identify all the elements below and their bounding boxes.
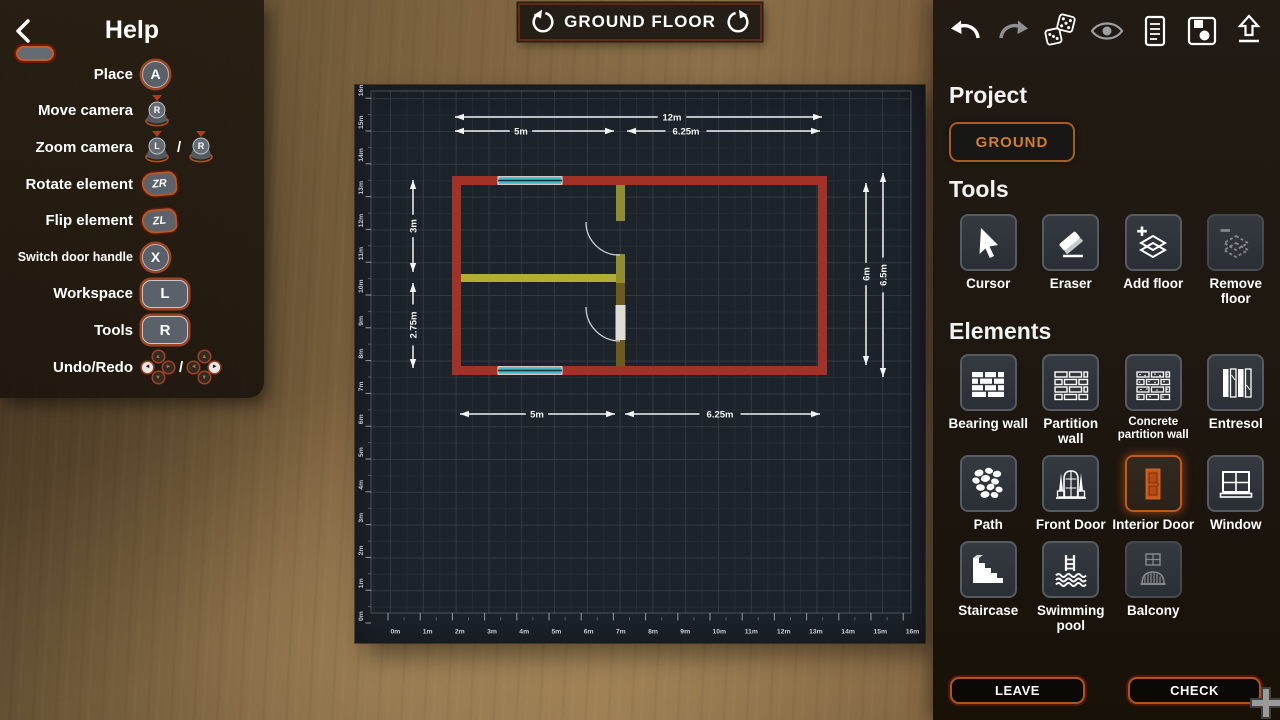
svg-text:15m: 15m	[358, 115, 365, 129]
redo-icon[interactable]	[994, 12, 1032, 50]
window-top	[498, 177, 562, 185]
elements-heading: Elements	[949, 318, 1051, 345]
undo-icon[interactable]	[947, 12, 985, 50]
help-row-workspace: Workspace L	[0, 276, 264, 313]
help-row-zoom-camera: Zoom camera L / R	[0, 129, 264, 166]
svg-text:1m: 1m	[358, 578, 365, 588]
add-floor-icon	[1125, 214, 1182, 271]
svg-text:13m: 13m	[809, 629, 823, 636]
notes-document-icon[interactable]	[1136, 12, 1174, 50]
svg-text:6.25m: 6.25m	[673, 126, 700, 137]
partition-wall-horizontal	[461, 274, 616, 282]
element-partition-wall[interactable]: Partition wall	[1030, 354, 1113, 446]
rotate-ccw-icon[interactable]	[529, 9, 556, 36]
svg-text:6m: 6m	[358, 414, 365, 424]
floor-title: GROUND FLOOR	[564, 12, 716, 32]
svg-text:10m: 10m	[713, 629, 727, 636]
zl-button-icon: ZL	[141, 207, 178, 234]
help-row-tools: Tools R	[0, 312, 264, 349]
partition-wall-vertical-lower1	[616, 283, 625, 305]
svg-text:12m: 12m	[662, 112, 681, 123]
interior-door-leaf	[616, 305, 626, 340]
elements-grid: Bearing wall Partition wall Concrete par…	[947, 354, 1277, 643]
staircase-icon	[960, 541, 1017, 598]
leave-button[interactable]: LEAVE	[950, 677, 1085, 704]
right-stick-icon: R	[142, 94, 172, 128]
svg-text:3m: 3m	[487, 629, 497, 636]
element-balcony[interactable]: Balcony	[1112, 541, 1195, 633]
randomize-dice-icon[interactable]	[1041, 12, 1079, 50]
element-staircase[interactable]: Staircase	[947, 541, 1030, 633]
element-bearing-wall[interactable]: Bearing wall	[947, 354, 1030, 446]
svg-text:5m: 5m	[552, 629, 562, 636]
element-concrete-partition-wall[interactable]: Concrete partition wall	[1112, 354, 1195, 446]
svg-text:16m: 16m	[906, 629, 920, 636]
svg-text:4m: 4m	[358, 480, 365, 490]
help-panel: Help Place A Move camera R Zoom camera	[0, 0, 264, 398]
svg-text:13m: 13m	[358, 181, 365, 195]
svg-text:8m: 8m	[358, 349, 365, 359]
interior-door-icon	[1125, 455, 1182, 512]
partition-wall-icon	[1042, 354, 1099, 411]
partition-wall-vertical-upper	[616, 185, 625, 221]
path-icon	[960, 455, 1017, 512]
svg-text:2m: 2m	[358, 546, 365, 556]
svg-text:7m: 7m	[358, 382, 365, 392]
help-row-switch-door-handle: Switch door handle X	[0, 239, 264, 276]
svg-text:R: R	[198, 142, 205, 152]
svg-text:12m: 12m	[358, 214, 365, 228]
save-floppy-icon[interactable]	[1183, 12, 1221, 50]
svg-text:2m: 2m	[455, 629, 465, 636]
svg-text:5m: 5m	[530, 409, 544, 420]
toolbar-icon-row	[947, 12, 1268, 50]
zr-button-icon: ZR	[141, 171, 178, 198]
blueprint-canvas[interactable]: 0m1m2m3m4m5m6m7m8m9m10m11m12m13m14m15m16…	[355, 85, 925, 643]
help-row-rotate-element: Rotate element ZR	[0, 166, 264, 203]
tool-eraser[interactable]: Eraser	[1030, 214, 1113, 306]
tools-grid: Cursor Eraser Add floor Remove floor	[947, 214, 1277, 315]
svg-text:16m: 16m	[358, 85, 365, 96]
crosshair-cursor-icon	[1249, 686, 1280, 720]
svg-text:6m: 6m	[861, 267, 872, 281]
l-button-icon: L	[142, 280, 188, 308]
floor-selector-header: GROUND FLOOR	[518, 3, 762, 41]
floor-plan-svg: 0m1m2m3m4m5m6m7m8m9m10m11m12m13m14m15m16…	[355, 85, 925, 643]
svg-text:6.5m: 6.5m	[878, 264, 889, 286]
svg-text:15m: 15m	[874, 629, 888, 636]
help-row-flip-element: Flip element ZL	[0, 202, 264, 239]
svg-text:6.25m: 6.25m	[707, 409, 734, 420]
element-entresol[interactable]: Entresol	[1195, 354, 1278, 446]
svg-text:0m: 0m	[391, 629, 401, 636]
swimming-pool-icon	[1042, 541, 1099, 598]
svg-text:14m: 14m	[841, 629, 855, 636]
svg-text:10m: 10m	[358, 279, 365, 293]
export-upload-icon[interactable]	[1230, 12, 1268, 50]
window-icon	[1207, 455, 1264, 512]
tools-heading: Tools	[949, 176, 1009, 203]
help-row-move-camera: Move camera R	[0, 93, 264, 130]
eraser-icon	[1042, 214, 1099, 271]
partition-wall-vertical-lower2	[616, 340, 625, 367]
svg-text:R: R	[154, 105, 161, 115]
visibility-eye-icon[interactable]	[1088, 12, 1126, 50]
element-window[interactable]: Window	[1195, 455, 1278, 532]
entresol-icon	[1207, 354, 1264, 411]
tool-cursor[interactable]: Cursor	[947, 214, 1030, 306]
x-button-icon: X	[142, 244, 169, 271]
element-interior-door[interactable]: Interior Door	[1112, 455, 1195, 532]
a-button-icon: A	[142, 61, 169, 88]
svg-text:11m: 11m	[745, 629, 758, 636]
element-front-door[interactable]: Front Door	[1030, 455, 1113, 532]
element-path[interactable]: Path	[947, 455, 1030, 532]
dpad-right-icon: ▲◄►▼	[188, 351, 220, 383]
remove-floor-icon	[1207, 214, 1264, 271]
cursor-icon	[960, 214, 1017, 271]
r-button-icon: R	[142, 316, 188, 344]
element-swimming-pool[interactable]: Swimming pool	[1030, 541, 1113, 633]
help-title: Help	[0, 16, 264, 45]
left-stick-icon: L	[142, 130, 172, 164]
svg-text:9m: 9m	[680, 629, 690, 636]
bearing-wall-icon	[960, 354, 1017, 411]
dpad-left-icon: ▲◄►▼	[142, 351, 174, 383]
floor-planner-app: { "help": { "title": "Help", "rows": [ {…	[0, 0, 1280, 720]
rotate-cw-icon[interactable]	[724, 9, 751, 36]
svg-text:4m: 4m	[519, 629, 529, 636]
svg-text:0m: 0m	[358, 611, 365, 621]
svg-text:9m: 9m	[358, 316, 365, 326]
svg-text:6m: 6m	[584, 629, 594, 636]
svg-text:11m: 11m	[358, 247, 365, 260]
front-door-icon	[1042, 455, 1099, 512]
tool-add-floor[interactable]: Add floor	[1112, 214, 1195, 306]
svg-text:5m: 5m	[358, 447, 365, 457]
partition-wall-vertical-mid	[616, 254, 625, 283]
svg-text:1m: 1m	[423, 629, 433, 636]
window-bottom	[498, 367, 562, 375]
check-button[interactable]: CHECK	[1128, 677, 1261, 704]
project-heading: Project	[949, 82, 1027, 109]
svg-text:12m: 12m	[777, 629, 791, 636]
tool-remove-floor[interactable]: Remove floor	[1195, 214, 1278, 306]
svg-text:7m: 7m	[616, 629, 626, 636]
project-ground-button[interactable]: GROUND	[949, 122, 1075, 162]
right-stick-icon: R	[186, 130, 216, 164]
svg-text:5m: 5m	[514, 126, 528, 137]
concrete-partition-wall-icon	[1125, 354, 1182, 411]
help-row-place: Place A	[0, 56, 264, 93]
svg-text:L: L	[154, 142, 160, 152]
svg-text:8m: 8m	[648, 629, 658, 636]
svg-text:3m: 3m	[358, 513, 365, 523]
help-row-undo-redo: Undo/Redo ▲◄►▼ / ▲◄►▼	[0, 349, 264, 386]
svg-text:3m: 3m	[408, 219, 419, 233]
balcony-icon	[1125, 541, 1182, 598]
right-panel: Project GROUND Tools Cursor Eraser Add f…	[933, 0, 1280, 720]
svg-text:2.75m: 2.75m	[408, 312, 419, 339]
svg-text:14m: 14m	[358, 148, 365, 162]
